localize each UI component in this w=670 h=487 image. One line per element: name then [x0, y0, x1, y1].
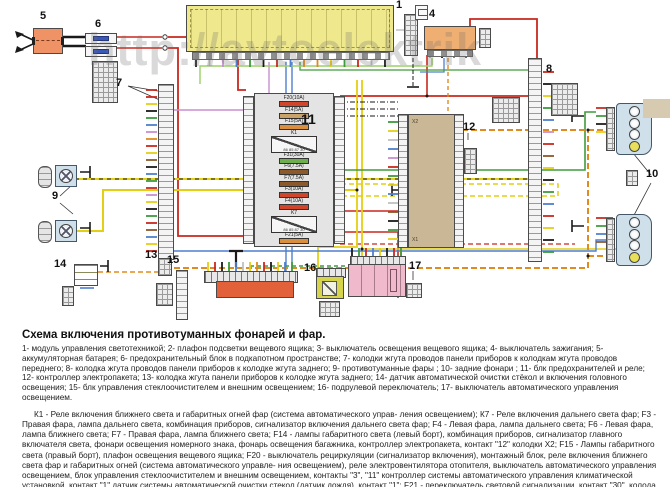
relay-row: K786 85 87 30 — [255, 211, 333, 233]
diagram-title: Схема включения противотуманных фонарей … — [22, 329, 659, 341]
fuse-row: F15(5A) — [255, 119, 333, 131]
fog-lamp-2 — [55, 220, 77, 242]
label-14: 14 — [54, 259, 66, 270]
component-legend: 1- модуль управления светотехникой; 2- п… — [22, 344, 659, 403]
rear-harness-strip — [528, 58, 542, 262]
rear-lamp-mid-connector — [626, 170, 638, 186]
relay-k1: 86 85 87 30 — [271, 136, 317, 153]
body-controller: X2 X1 — [408, 114, 456, 248]
connector-x1-label: X1 — [412, 237, 418, 243]
label-4: 4 — [429, 9, 435, 20]
fuse-block-left-pins — [243, 96, 254, 244]
photo-artifact — [643, 99, 670, 118]
wiper-lighting-control-unit — [216, 281, 294, 298]
fuse-block-right-pins — [334, 96, 345, 244]
steering-stalk-switch — [316, 276, 344, 299]
label-9: 9 — [52, 191, 58, 202]
stalk-connector — [319, 301, 340, 317]
controller-right-strip — [454, 114, 464, 248]
caption-block: Схема включения противотуманных фонарей … — [22, 329, 659, 487]
label-1: 1 — [396, 0, 402, 11]
watermark: http://avtoelektrik — [88, 24, 482, 76]
relay-row: K186 85 87 30 — [255, 131, 333, 153]
auto-light-switch — [348, 264, 406, 297]
wire-stubs — [146, 52, 613, 271]
fuse-row: F4(10A) — [255, 199, 333, 211]
glovebox-lamp-symbol — [415, 5, 428, 20]
fog-lamp-1 — [55, 165, 77, 187]
relay-k7: 86 85 87 30 — [271, 216, 317, 233]
unit15-side-strip — [176, 270, 188, 320]
label-8: 8 — [546, 64, 552, 75]
label-5: 5 — [40, 11, 46, 22]
rear-connector-13b — [156, 283, 173, 306]
front-harness-strip — [158, 84, 174, 260]
label-17: 17 — [409, 261, 421, 272]
controller-small-connector — [464, 148, 477, 174]
rear-lamp-connector-2 — [606, 218, 615, 262]
auto-light-connector — [406, 283, 422, 298]
wiring-diagram-page: http://avtoelektrik — [0, 0, 670, 487]
center-connector — [492, 97, 520, 123]
rear-lamp-2 — [616, 214, 652, 266]
schematic-canvas: http://avtoelektrik — [0, 0, 670, 330]
connector-x2-label: X2 — [412, 119, 418, 125]
label-13: 13 — [145, 250, 157, 261]
label-7: 7 — [116, 78, 122, 89]
fog-lamp-connector-1 — [38, 166, 52, 188]
fuse-relay-block: F20(10A) F14(5A) F15(5A) K186 85 87 30 F… — [254, 93, 334, 247]
fuse-chip — [279, 238, 309, 244]
ground-arrow-heads — [15, 31, 24, 53]
battery — [33, 28, 63, 54]
controller-left-strip — [398, 114, 408, 248]
fuse-row: F20(10A) — [255, 96, 333, 108]
rear-lamp-connector-1 — [606, 107, 615, 151]
label-12: 12 — [463, 122, 475, 133]
lamp-symbol — [59, 169, 73, 183]
label-11: 11 — [301, 112, 316, 126]
fuse-relay-notes: К1 - Реле включения ближнего света и габ… — [22, 410, 659, 487]
fog-lamp-connector-2 — [38, 221, 52, 243]
rain-light-sensor — [74, 264, 98, 286]
rear-harness-connector — [551, 83, 578, 116]
lamp-symbol — [59, 224, 73, 238]
label-16: 16 — [304, 263, 316, 274]
fuse-row: F21(5A) — [255, 233, 333, 245]
battery-links — [62, 37, 86, 46]
sensor-connector — [62, 286, 74, 306]
label-15: 15 — [167, 255, 179, 266]
label-10: 10 — [646, 169, 658, 180]
